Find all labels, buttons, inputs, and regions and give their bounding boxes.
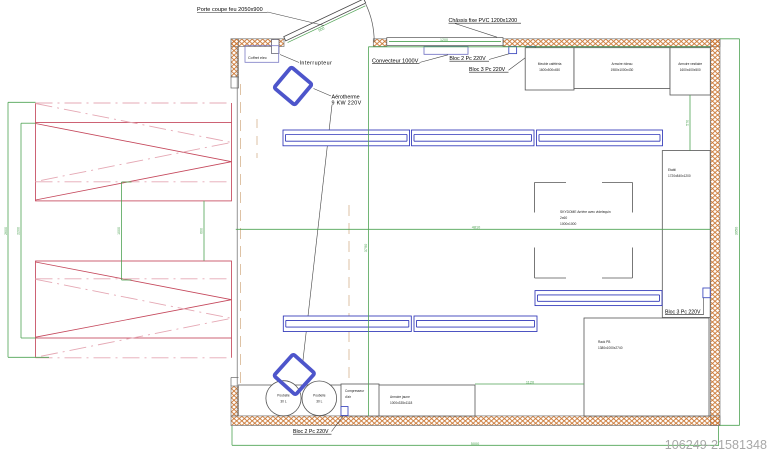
svg-text:Compresseur: Compresseur [345,389,365,393]
svg-text:106249-21581348: 106249-21581348 [665,438,767,452]
svg-text:Poubelle: Poubelle [313,394,326,398]
svg-text:Etabli: Etabli [668,168,676,172]
svg-text:3790: 3790 [364,244,368,252]
svg-text:d'air: d'air [345,395,352,399]
svg-text:Armoire jaune: Armoire jaune [390,395,410,399]
svg-text:SKYDOME Arrière avec videlequi: SKYDOME Arrière avec videlequin [560,210,611,214]
svg-text:4810: 4810 [472,226,480,230]
svg-text:Porte coupe feu 2050x900: Porte coupe feu 2050x900 [197,7,263,13]
svg-text:1380x1000x2740: 1380x1000x2740 [598,346,623,350]
svg-text:Armoire vestiaire: Armoire vestiaire [678,62,702,66]
svg-text:2600: 2600 [4,227,8,235]
svg-text:5000: 5000 [471,442,479,446]
svg-text:Coffret elec: Coffret elec [248,56,267,60]
svg-text:1980x1000x430: 1980x1000x430 [611,68,634,72]
svg-text:1600x400x500: 1600x400x500 [680,68,701,72]
svg-text:30 L: 30 L [280,400,286,404]
svg-text:Bloc 2 Pc 220V: Bloc 2 Pc 220V [449,56,486,62]
svg-text:1720x840x1200: 1720x840x1200 [668,174,691,178]
svg-text:Poubelle: Poubelle [277,394,290,398]
svg-text:3950: 3950 [735,227,739,235]
svg-text:600: 600 [199,228,203,234]
svg-text:Armoire rideau: Armoire rideau [612,62,633,66]
svg-text:2x60: 2x60 [560,216,567,220]
svg-text:1000: 1000 [117,227,121,235]
svg-text:1000x1000: 1000x1000 [560,222,576,226]
svg-text:Châssis fixe PVC 1200x1200: Châssis fixe PVC 1200x1200 [449,18,518,24]
svg-text:Rack PB: Rack PB [598,340,610,344]
svg-text:Interrupteur: Interrupteur [300,61,333,67]
svg-text:Bloc 2 Pc 220V: Bloc 2 Pc 220V [293,429,329,435]
svg-text:Meuble cafétéria: Meuble cafétéria [538,62,562,66]
svg-text:Bloc 3 Pc 220V: Bloc 3 Pc 220V [665,309,701,315]
svg-text:1200: 1200 [440,38,448,42]
svg-text:1000x335x1118: 1000x335x1118 [390,401,412,405]
svg-text:9 KW 220V: 9 KW 220V [332,100,362,106]
svg-text:30 L: 30 L [316,400,322,404]
svg-text:1120: 1120 [526,381,534,385]
svg-text:2200: 2200 [17,227,21,235]
svg-text:Bloc 3 Pc 220V: Bloc 3 Pc 220V [469,67,506,73]
svg-text:1600x500x450: 1600x500x450 [539,68,560,72]
svg-text:570: 570 [685,120,689,126]
svg-text:Convecteur 1000V: Convecteur 1000V [372,58,419,64]
